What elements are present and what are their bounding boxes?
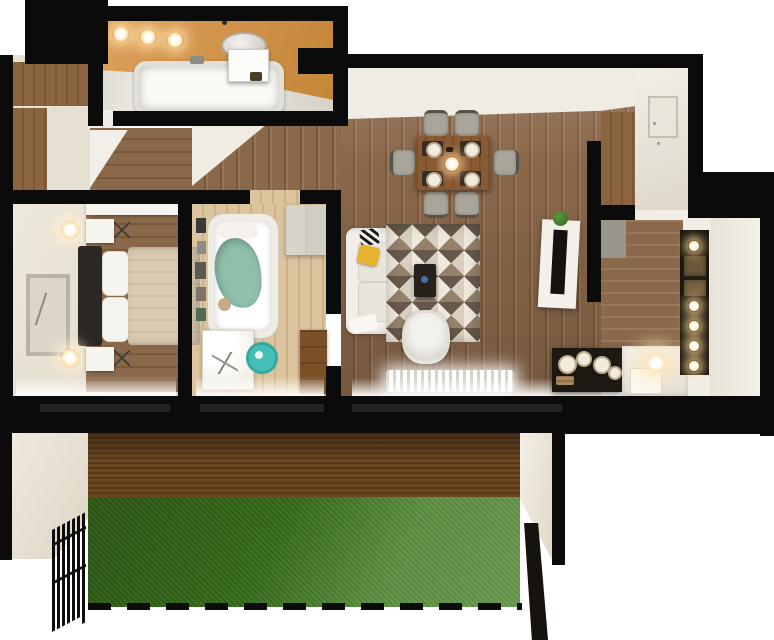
wall-kitchen-divider <box>587 141 601 302</box>
floor-plan-render <box>0 0 774 640</box>
kids-picture-frame <box>196 218 206 233</box>
deco-plate <box>608 366 622 380</box>
closet-wardrobe-top <box>13 62 92 106</box>
plate <box>426 172 442 188</box>
sphere-lamp <box>644 352 668 374</box>
wall-bathroom-bottom <box>113 111 348 126</box>
kids-picture-frame <box>197 241 206 254</box>
armchair <box>402 310 450 364</box>
kids-desk-chair-seat <box>255 351 263 359</box>
garden-boundary-dashes <box>88 603 522 610</box>
kids-desk-chair <box>246 342 278 374</box>
wall-right-jog <box>688 172 774 218</box>
garden-wall-left <box>0 420 12 560</box>
garden-wall-right <box>552 420 565 565</box>
coffee-table-bowl <box>421 276 428 283</box>
wardrobe-handle <box>653 122 656 125</box>
kids-window-glow <box>196 376 324 396</box>
plate <box>426 142 442 158</box>
wall-kitchen-stub <box>587 205 635 220</box>
cabinet-shelf-niche <box>684 256 706 276</box>
crib-pillow <box>218 222 258 239</box>
window-frame-kids <box>200 404 324 412</box>
cabinet-light <box>688 300 700 312</box>
wall-bedroom-top <box>13 190 192 204</box>
wall-bottom-band <box>0 396 774 434</box>
wall-kids-top-left <box>192 190 250 204</box>
wall-living-top <box>341 54 703 68</box>
table-candle-glow <box>444 156 460 172</box>
garden-metal-fence <box>52 512 86 632</box>
dining-chair <box>455 192 479 218</box>
bed-headboard <box>78 246 102 346</box>
wardrobe-handle <box>657 142 660 145</box>
wall-bathroom-left <box>88 20 103 126</box>
kids-picture-frame <box>195 262 206 279</box>
plate <box>464 172 480 188</box>
cabinet-light <box>688 360 700 372</box>
bedroom-wall-art <box>26 274 70 356</box>
bathtub-faucet <box>190 56 204 64</box>
cabinet-light <box>688 320 700 332</box>
kids-wardrobe <box>286 205 326 255</box>
corridor-picture-frame <box>648 96 678 138</box>
deco-plate <box>558 355 577 374</box>
linen-stack <box>556 376 574 385</box>
wall-bathroom-top <box>104 6 348 21</box>
ceiling-spotlight <box>139 29 157 45</box>
kitchen-counter-right <box>710 218 760 398</box>
corridor-wardrobe-front <box>635 66 688 212</box>
dining-chair <box>424 110 448 136</box>
plate <box>464 142 480 158</box>
cabinet-light <box>688 340 700 352</box>
wall-kids-right-upper <box>326 190 341 314</box>
bedside-lamp <box>60 220 80 240</box>
table-centerpiece <box>446 147 453 152</box>
deco-plate <box>576 351 592 367</box>
bedside-stool <box>114 222 130 238</box>
desk-scribbles <box>212 352 238 374</box>
wall-bathroom-notch <box>298 48 335 74</box>
cabinet-light <box>688 240 700 252</box>
cabinet-shelf-niche <box>684 280 706 296</box>
dining-chair <box>455 110 479 136</box>
nightstand <box>86 347 114 371</box>
plush-toy <box>218 298 231 311</box>
garden-lawn <box>88 497 520 607</box>
closet-wardrobe-side <box>13 108 47 192</box>
corridor-wood-panel <box>601 112 635 212</box>
dining-chair <box>424 192 448 218</box>
bedroom-window-glow <box>16 376 176 396</box>
garden-deck-shadow <box>88 433 520 497</box>
kids-picture-frame <box>196 287 206 301</box>
bed-pillow <box>102 251 129 296</box>
wall-outer-left <box>0 55 13 420</box>
wall-right-upper <box>688 54 703 176</box>
vanity-sink <box>228 49 269 82</box>
vanity-stool <box>250 72 262 81</box>
bed-pillow <box>102 297 129 342</box>
ceiling-spotlight <box>166 32 184 48</box>
kids-door-opening <box>250 190 300 204</box>
ceiling-spotlight <box>112 26 130 42</box>
bedroom-shelf <box>86 203 178 215</box>
wall-kids-right-lower <box>326 366 341 398</box>
dining-chair <box>390 150 415 175</box>
window-frame-bedroom <box>40 404 170 412</box>
kitchen-gray-niche <box>601 220 626 258</box>
bedside-lamp <box>60 348 80 368</box>
window-frame-living <box>352 404 562 412</box>
plant <box>553 211 568 226</box>
nightstand <box>86 219 114 243</box>
kids-picture-frame <box>196 308 206 321</box>
bedside-stool <box>114 350 130 366</box>
dining-chair <box>494 150 519 175</box>
wall-bedroom-kids-divider <box>178 190 192 398</box>
